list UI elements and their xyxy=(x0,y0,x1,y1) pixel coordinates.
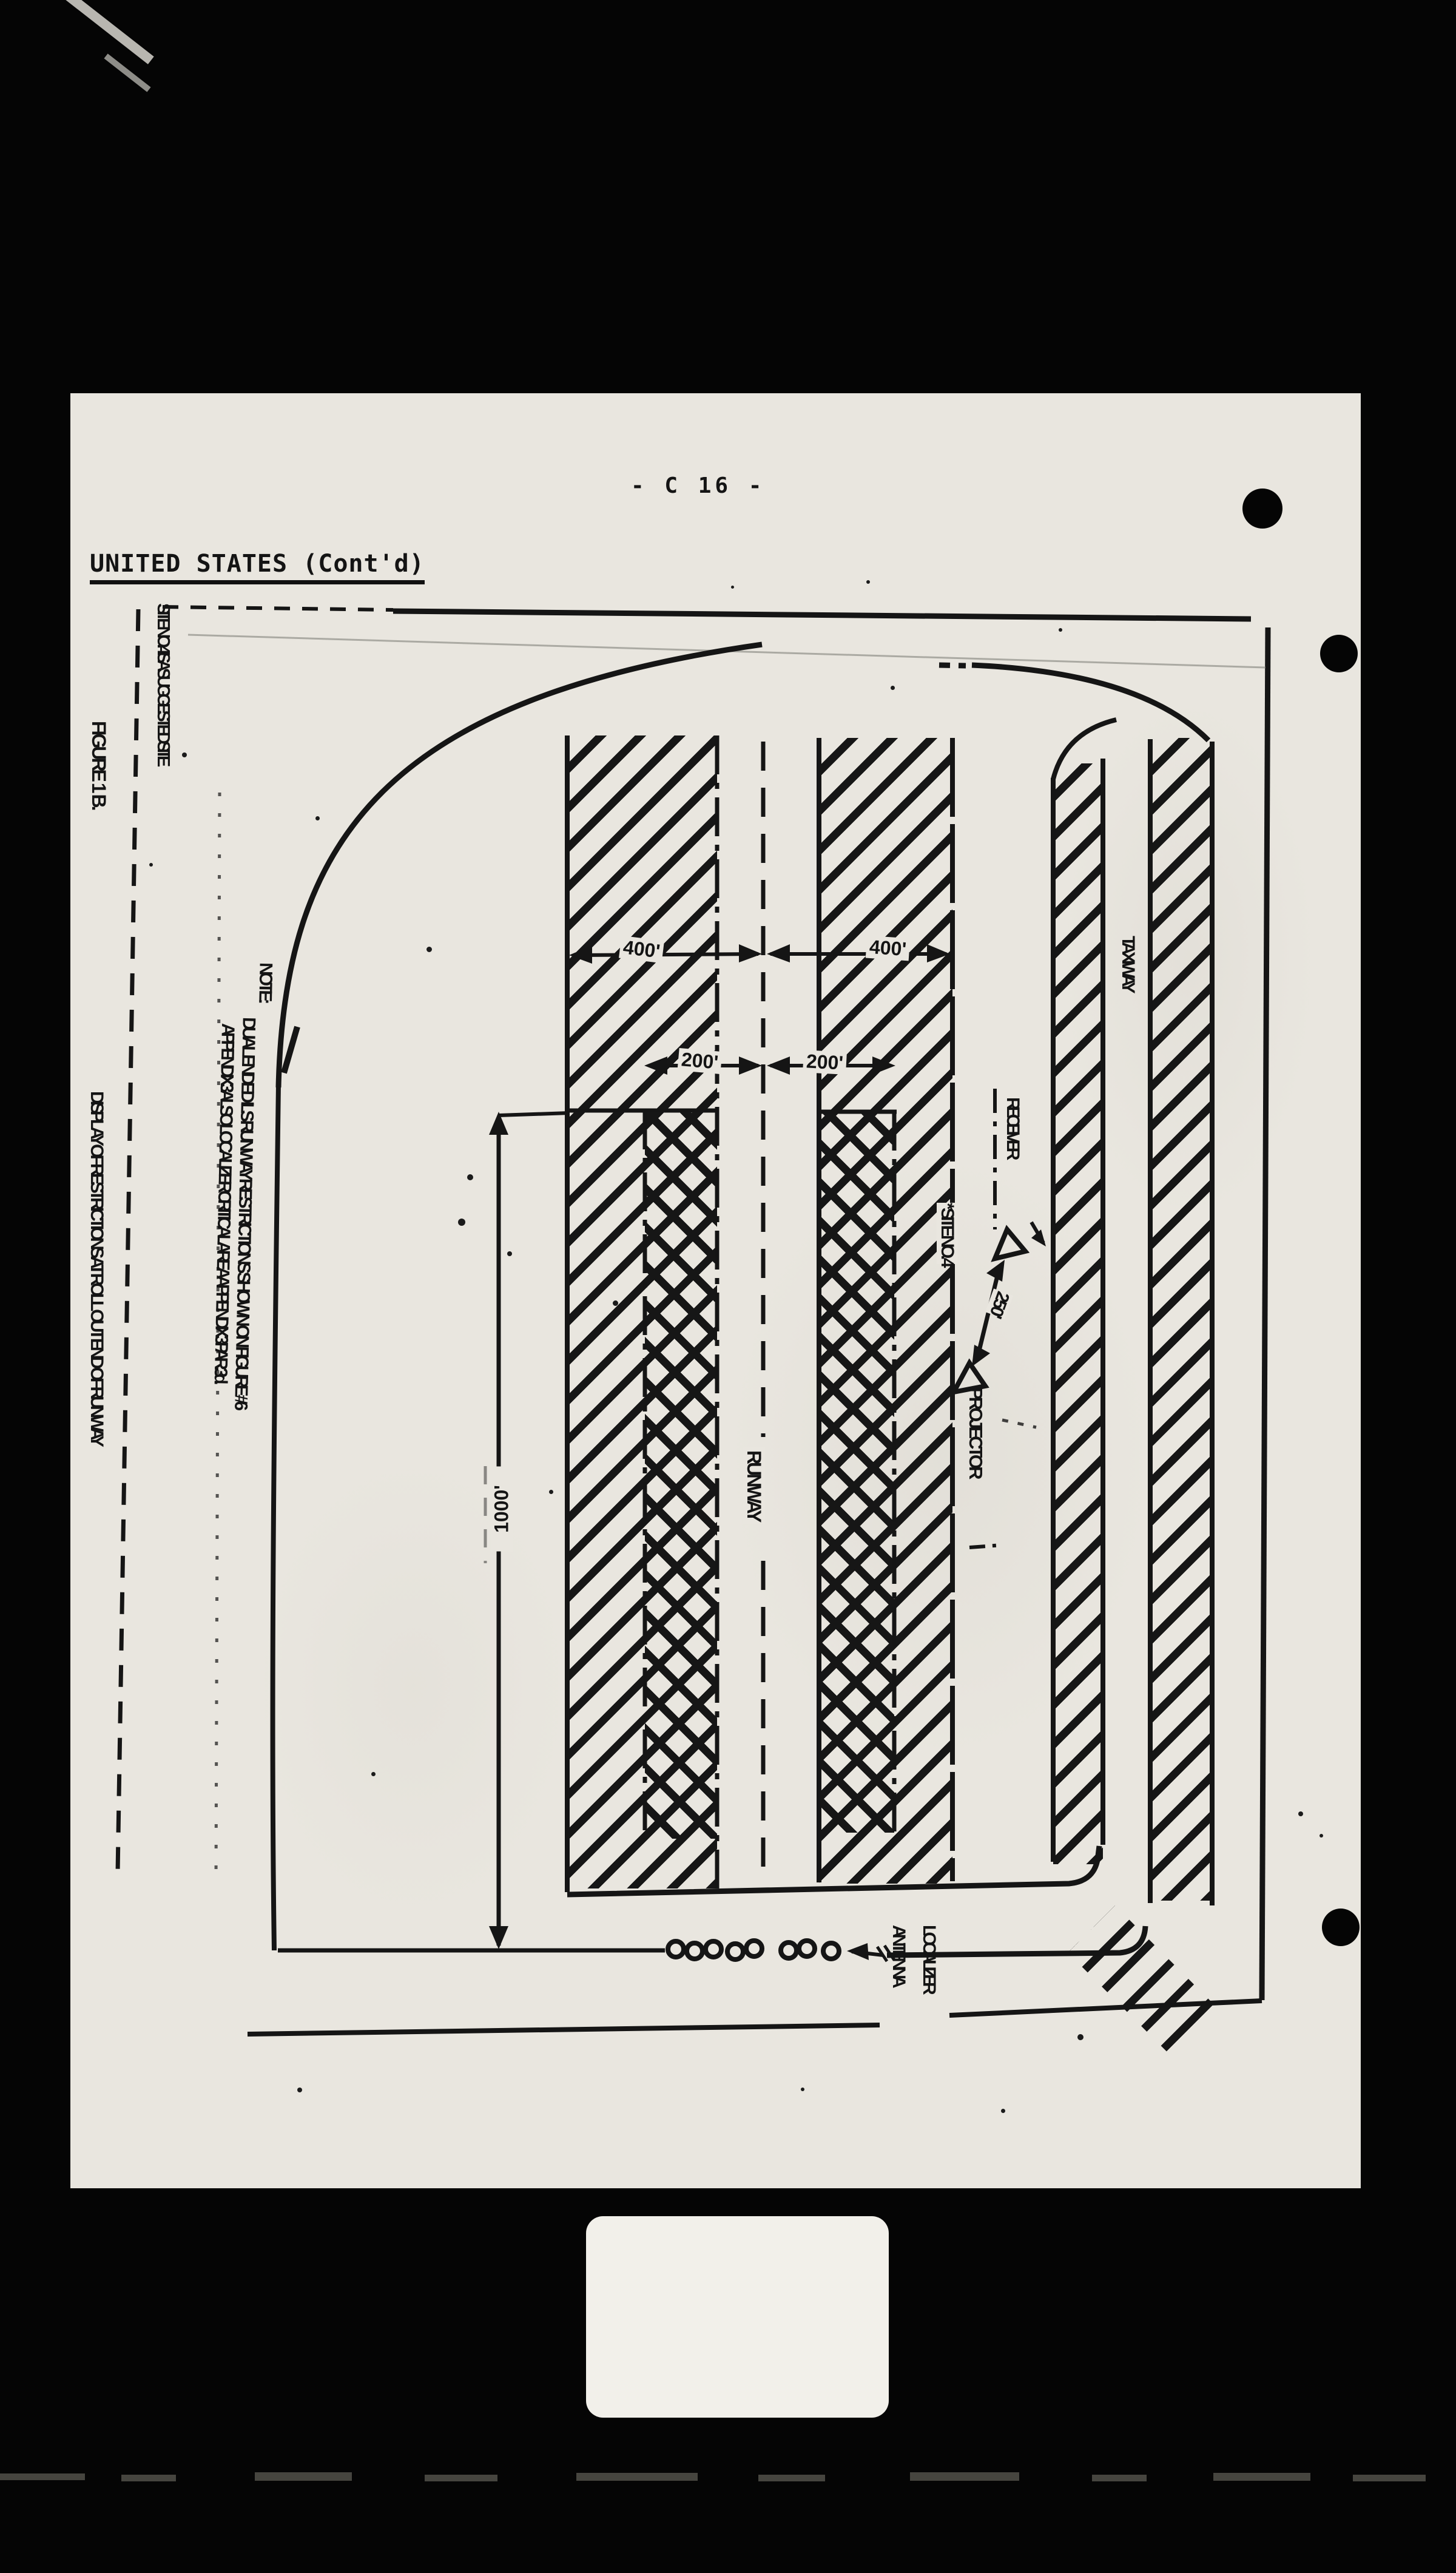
note-heading: NOTE: xyxy=(254,962,275,1001)
figure-title: DISPLAY OF RESTRICTIONS AT ROLL OUT END … xyxy=(86,1091,107,1444)
dim-400-left-line xyxy=(578,954,758,955)
taxiway-entry-curve-fade xyxy=(939,665,966,666)
section-heading: UNITED STATES (Cont'd) xyxy=(90,550,425,584)
runway-end-line xyxy=(567,1846,1099,1895)
pen-slash-artifact xyxy=(284,1027,297,1073)
frame-bottom-left xyxy=(248,2025,880,2034)
runway-label: RUNWAY xyxy=(743,1447,765,1524)
localizer-antenna-label: LOCALIZER ANTENNA xyxy=(883,1925,944,1991)
page-number: - C 16 - xyxy=(631,473,765,498)
scanned-page: - C 16 - UNITED STATES (Cont'd) FIGURE 1… xyxy=(0,0,1456,2573)
frame-top xyxy=(393,611,1251,619)
receiver-symbol xyxy=(995,1229,1025,1259)
punch-hole xyxy=(1322,1909,1360,1946)
localizer-label-line2: ANTENNA xyxy=(883,1925,914,1991)
frame-left-dashed xyxy=(118,609,138,1873)
punch-hole xyxy=(1320,635,1358,672)
site-leader-line xyxy=(1002,1420,1036,1427)
dim-200-left-label: 200' xyxy=(678,1048,723,1074)
localizer-antenna-elements xyxy=(668,1941,839,1959)
dim-200-right-label: 200' xyxy=(803,1050,847,1075)
projector-label: PROJECTOR xyxy=(965,1387,986,1476)
localizer-label-line1: LOCALIZER xyxy=(914,1925,944,1991)
dim-1000-tick xyxy=(499,1113,569,1115)
critical-area-arc xyxy=(278,644,762,1087)
site-no4-label: * SITE NO. 4 xyxy=(937,1203,957,1264)
taxiway-entry-curve-inner xyxy=(1053,720,1116,779)
receiver-label: RECEIVER xyxy=(1002,1097,1023,1156)
figure-number: FIGURE 1 B. xyxy=(87,721,110,808)
figure-margin-note: SITE NO. 4 IS A SUGGESTED SITE xyxy=(153,603,173,763)
punch-hole xyxy=(1242,489,1282,529)
taxiway-label: TAXIWAY xyxy=(1117,936,1138,990)
site-leader-line xyxy=(969,1545,1002,1547)
blank-label-card xyxy=(586,2216,889,2418)
dim-1000-label: 1000' xyxy=(491,1467,513,1552)
critical-area-left-boundary xyxy=(273,1084,278,1950)
frame-top-dashed xyxy=(163,607,393,610)
frame-right xyxy=(1262,627,1268,2000)
arrowheads xyxy=(489,944,1046,1960)
frame-bottom-right xyxy=(949,2001,1262,2015)
dim-400-right-label: 400' xyxy=(866,936,910,961)
